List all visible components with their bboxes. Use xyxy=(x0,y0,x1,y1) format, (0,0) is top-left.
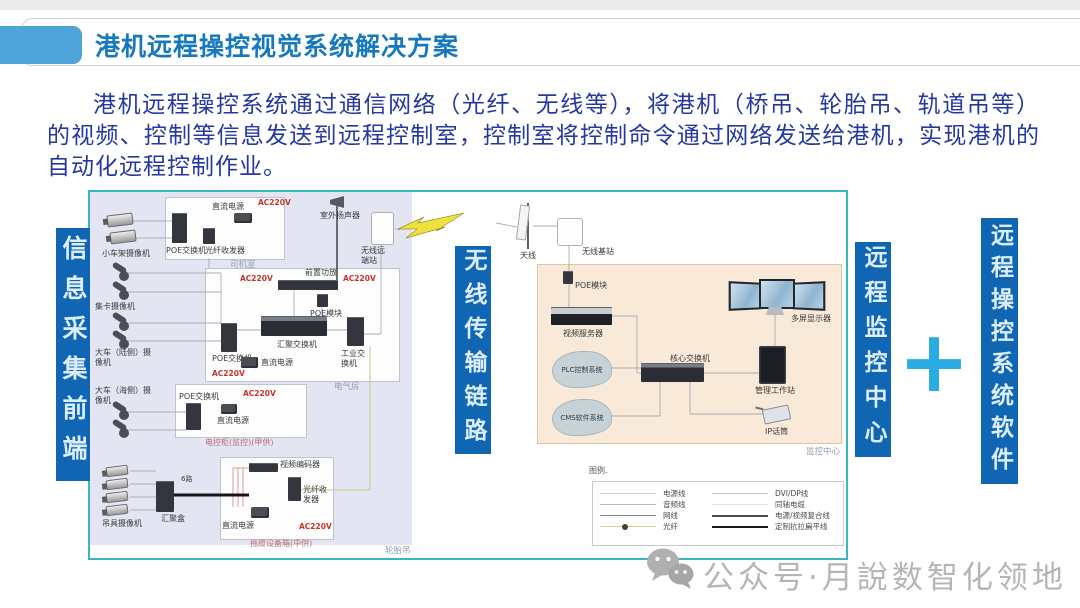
elec-ac220v-label: AC220V xyxy=(343,274,376,283)
display-screen-icon xyxy=(729,281,762,311)
dc-power-icon xyxy=(221,404,237,414)
trolley-camera-label: 小车架摄像机 xyxy=(102,249,150,259)
cabinet-poe-switch-label: POE交换机 xyxy=(179,392,219,402)
legend-dvi-line-sample xyxy=(712,493,768,494)
core-switch-label: 核心交换机 xyxy=(670,354,710,364)
poe-switch-icon xyxy=(186,403,201,430)
industrial-switch-label: 工业交换机 xyxy=(341,349,371,368)
monitor-room-tag: 监控中心 xyxy=(806,447,840,457)
display-stand-icon xyxy=(766,307,784,315)
legend-fiber-dot xyxy=(622,524,628,530)
workstation-label: 管理工作站 xyxy=(755,386,795,396)
preamp-icon xyxy=(278,280,338,290)
display-screen-icon xyxy=(759,279,795,309)
wireless-link-vertical-label: 无线传输链路 xyxy=(455,246,491,454)
room-poe-module-label: POE模块 xyxy=(575,281,607,291)
elec-ac220v-label: AC220V xyxy=(240,274,273,283)
junction-box-icon xyxy=(156,481,174,512)
cablebox-ac220v-label: AC220V xyxy=(299,522,332,531)
cablebox-fiber-label: 光纤收发器 xyxy=(303,485,333,504)
elec-room-tag: 电气房 xyxy=(334,382,360,392)
gantry-land-camera-icon xyxy=(112,314,130,331)
software-vertical-label: 远程操控系统软件 xyxy=(981,218,1018,484)
legend-network-line-sample xyxy=(600,515,656,516)
core-switch-icon xyxy=(641,363,704,382)
video-server-label: 视频服务器 xyxy=(563,329,603,339)
legend-audio-line-sample xyxy=(600,504,656,505)
trunk-line-tag: 6路 xyxy=(181,475,192,483)
cab-fiber-label: 光纤收发器 xyxy=(205,246,245,256)
gantry-land-camera-icon xyxy=(112,332,130,349)
cab-tag: 司机室 xyxy=(230,260,256,270)
display-screen-icon xyxy=(793,281,826,311)
watermark-text: 公众号·月說数智化领地 xyxy=(703,552,1067,597)
base-station-icon xyxy=(557,218,583,246)
cab-poe-switch-label: POE交换机 xyxy=(166,246,206,256)
legend-title: 图例. xyxy=(589,466,608,476)
crane-type-tag: 轮胎吊 xyxy=(385,546,411,556)
truck-camera-icon xyxy=(112,283,130,300)
aggregation-switch-label: 汇聚交换机 xyxy=(277,340,317,350)
poe-switch-icon xyxy=(172,213,187,243)
gantry-land-camera-label: 大车（陆侧）摄像机 xyxy=(95,348,153,367)
elec-ac220v-label: AC220V xyxy=(212,369,245,378)
plc-system-cloud: PLC控制系统 xyxy=(552,351,612,388)
dc-power-icon xyxy=(234,213,252,223)
gantry-sea-camera-icon xyxy=(112,403,130,420)
base-station-label: 无线基站 xyxy=(582,247,614,257)
outdoor-speaker-label: 室外扬声器 xyxy=(320,211,360,221)
cab-ac220v-label: AC220V xyxy=(258,198,291,207)
plus-sign: + xyxy=(898,312,968,412)
wechat-icon xyxy=(643,545,697,595)
slide-top-strip xyxy=(0,0,1080,10)
wireless-remote-station-label: 无线远端站 xyxy=(361,246,389,265)
industrial-switch-icon xyxy=(347,317,364,346)
legend-label: DVI/DP线 xyxy=(775,488,808,499)
legend-label: 定制抗拉扁平线 xyxy=(775,521,828,532)
fiber-transceiver-icon xyxy=(203,228,215,244)
cabinet-ac220v-label: AC220V xyxy=(243,389,276,398)
video-server-icon xyxy=(551,307,612,325)
cabinet-tag: 电控柜(监控)(甲供) xyxy=(205,438,273,448)
poe-module-icon xyxy=(563,271,573,284)
title-accent-tab xyxy=(0,26,82,64)
monitor-center-vertical-label: 远程监控中心 xyxy=(855,242,891,457)
legend-label: 音频线 xyxy=(663,499,686,510)
cabinet-dc-power-label: 直流电源 xyxy=(217,416,249,426)
legend-label: 网线 xyxy=(663,510,678,521)
dc-power-icon xyxy=(241,357,258,368)
legend-coax-line-sample xyxy=(712,504,768,505)
gantry-sea-camera-icon xyxy=(112,421,130,438)
legend-label: 电源/视频复合线 xyxy=(775,510,830,521)
ip-microphone-label: IP话筒 xyxy=(765,427,788,437)
front-end-vertical-label: 信息采集前端 xyxy=(56,228,90,481)
cable-box-tag: 拖缆设备箱(中供) xyxy=(250,539,312,549)
legend-power-line-sample xyxy=(600,493,656,494)
legend-label: 同轴电缆 xyxy=(775,499,805,510)
page-title: 港机远程操控视觉系统解决方案 xyxy=(95,27,459,63)
cablebox-dc-power-label: 直流电源 xyxy=(222,521,254,531)
legend-flat-line-sample xyxy=(712,526,768,528)
video-encoder-label: 视频编码器 xyxy=(280,460,320,470)
video-encoder-icon xyxy=(249,463,278,472)
truck-camera-icon xyxy=(112,264,130,281)
spreader-camera-label: 吊具摄像机 xyxy=(102,519,142,529)
dc-power-icon xyxy=(251,507,269,518)
poe-module-icon xyxy=(317,294,328,307)
intro-paragraph: 港机远程操控系统通过通信网络（光纤、无线等），将港机（桥吊、轮胎吊、轨道吊等）的… xyxy=(47,90,1040,183)
workstation-tower-icon xyxy=(759,346,786,384)
legend-label: 光纤 xyxy=(663,521,678,532)
cms-system-cloud: CMS软件系统 xyxy=(552,399,612,436)
lightning-bolt-icon xyxy=(398,213,464,238)
multi-display-label: 多屏显示器 xyxy=(791,314,831,324)
poe-switch-icon xyxy=(221,323,237,352)
preamp-label: 前置功放 xyxy=(305,268,337,278)
cab-dc-power-label: 直流电源 xyxy=(212,202,244,212)
truck-camera-label: 集卡摄像机 xyxy=(95,302,135,312)
antenna-label: 天线 xyxy=(520,251,536,261)
legend-label: 电源线 xyxy=(663,488,686,499)
legend-composite-line-sample xyxy=(712,515,768,517)
junction-box-label: 汇聚盒 xyxy=(161,514,185,524)
elec-dc-power-label: 直流电源 xyxy=(261,358,293,368)
fiber-transceiver-icon xyxy=(288,477,301,501)
aggregation-switch-icon xyxy=(261,316,327,336)
wireless-remote-station-icon xyxy=(371,212,394,245)
